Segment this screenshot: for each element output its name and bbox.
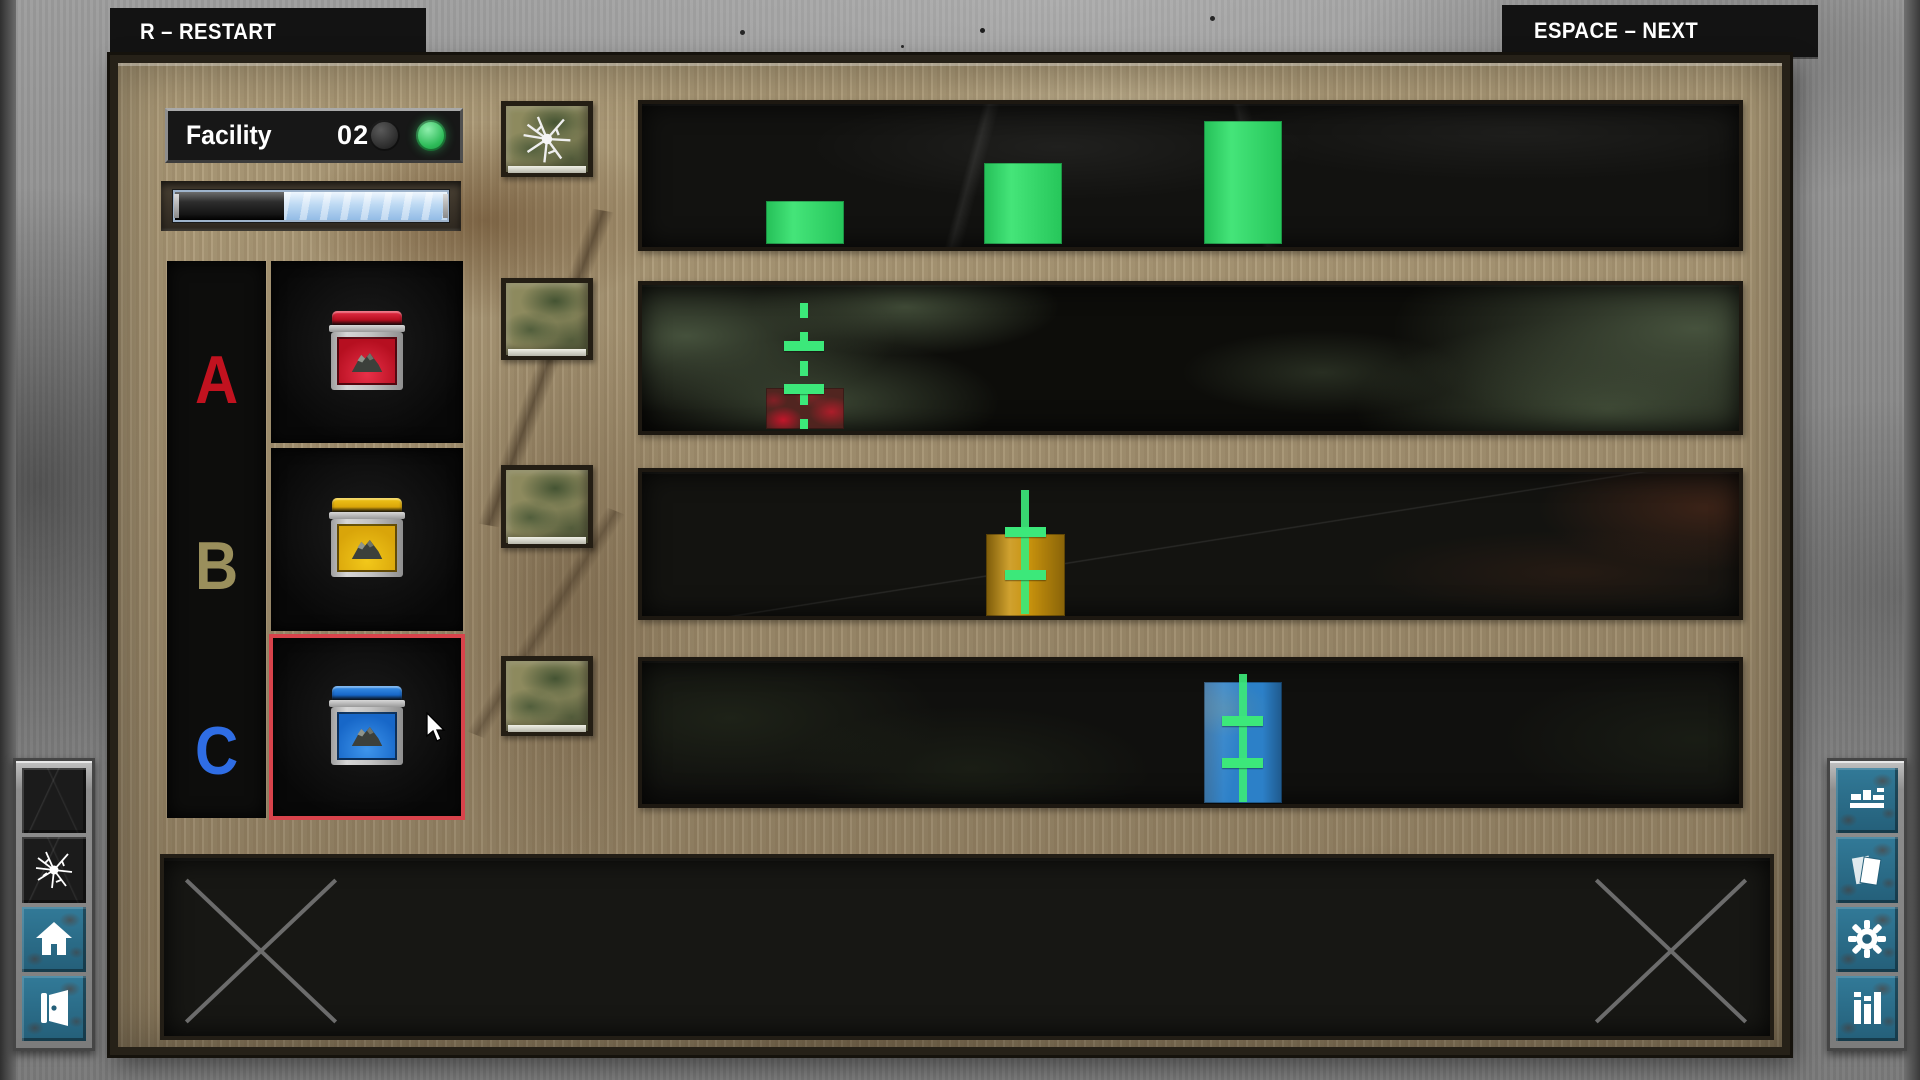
target-line [1021, 490, 1029, 614]
restart-hint-bar: R – RESTART [110, 8, 426, 56]
timer-recess [161, 181, 461, 231]
facility-number: 02 [337, 120, 369, 151]
target-tick [784, 384, 825, 394]
exit-door-icon [34, 988, 74, 1028]
home-icon [34, 919, 74, 959]
settings-button[interactable] [1836, 907, 1898, 972]
shelf-target-bars[interactable] [638, 100, 1743, 251]
right-toolbar [1827, 758, 1907, 1051]
facility-label: Facility [186, 120, 272, 151]
next-hint-bar: ESPACE – NEXT [1502, 5, 1818, 57]
ore-pile-icon [348, 723, 386, 748]
target-tick [1005, 570, 1046, 580]
notes-button[interactable] [1836, 837, 1898, 902]
dispenser-button-2[interactable] [501, 278, 593, 360]
wall-speckles [740, 30, 745, 35]
ore-pile-icon [348, 349, 386, 374]
material-cell-a[interactable] [271, 261, 463, 443]
material-letter-b: B [167, 447, 266, 633]
empty-slot-cross-right [1596, 880, 1746, 1022]
target-line [800, 303, 808, 429]
facility-board: Facility 02 A B C [110, 55, 1790, 1055]
target-tick [1222, 716, 1263, 726]
dispenser-button-3[interactable] [501, 465, 593, 548]
shelf-red-material[interactable] [638, 281, 1743, 435]
material-rack: A B C [165, 261, 463, 818]
shelf-blue-material[interactable] [638, 657, 1743, 808]
exit-button[interactable] [22, 976, 86, 1041]
notes-icon [1847, 850, 1887, 890]
timer-remaining [284, 192, 447, 220]
empty-slot-cross-left [186, 880, 336, 1022]
target-supply-bar [766, 201, 844, 244]
target-tick [784, 341, 825, 351]
ore-pile-icon [348, 536, 386, 561]
stats-button[interactable] [1836, 976, 1898, 1041]
material-letters-column: A B C [167, 261, 266, 818]
indicator-light-on [416, 120, 446, 151]
material-letter-c: C [167, 632, 266, 818]
target-line [1239, 674, 1247, 802]
next-hint-label: ESPACE – NEXT [1534, 18, 1698, 44]
target-tick [1005, 527, 1046, 537]
target-supply-bar [1204, 121, 1282, 244]
left-toolbar [13, 758, 95, 1051]
material-cells-column [271, 261, 463, 818]
dispenser-button-4[interactable] [501, 656, 593, 736]
jar-icon-red [329, 311, 405, 393]
blank-slot-button[interactable] [22, 768, 86, 833]
timer-elapsed [175, 192, 284, 220]
conveyor-button[interactable] [1836, 768, 1898, 833]
facility-header-panel: Facility 02 [165, 108, 463, 163]
conveyor-icon [1847, 781, 1887, 821]
material-letter-a: A [167, 261, 266, 447]
shatter-icon [34, 850, 74, 890]
shelf-yellow-material[interactable] [638, 468, 1743, 620]
stats-icon [1847, 988, 1887, 1028]
output-tray [160, 854, 1774, 1040]
jar-icon-yellow [329, 498, 405, 580]
home-button[interactable] [22, 907, 86, 972]
jar-icon-blue [329, 686, 405, 768]
target-supply-bar [984, 163, 1062, 245]
restart-hint-label: R – RESTART [140, 19, 276, 45]
game-screen: R – RESTART ESPACE – NEXT Facility 02 A … [0, 0, 1920, 1080]
shatter-button[interactable] [22, 837, 86, 902]
timer-bar [173, 190, 449, 222]
target-tick [1222, 758, 1263, 768]
dispenser-button-1[interactable] [501, 101, 593, 177]
material-cell-b[interactable] [271, 448, 463, 630]
gear-icon [1847, 919, 1887, 959]
indicator-light-off [369, 120, 399, 151]
shatter-icon [521, 113, 573, 165]
material-cell-c[interactable] [271, 636, 463, 818]
